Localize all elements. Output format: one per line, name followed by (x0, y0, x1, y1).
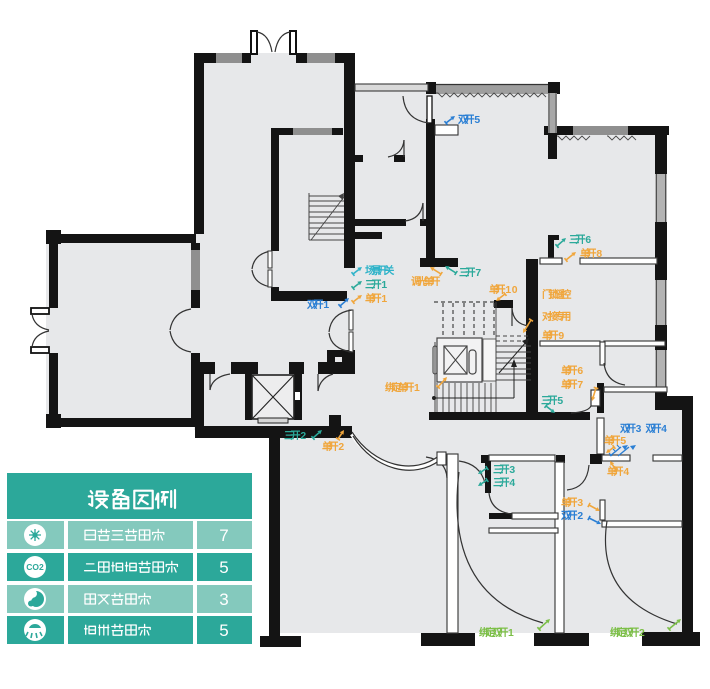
svg-text:5: 5 (219, 621, 228, 640)
svg-text:7: 7 (577, 380, 583, 391)
svg-text:开: 开 (626, 423, 636, 435)
svg-text:1: 1 (381, 280, 387, 291)
svg-text:5: 5 (620, 436, 626, 447)
svg-text:3: 3 (577, 498, 583, 509)
svg-text:CO2: CO2 (26, 562, 44, 572)
svg-text:1: 1 (323, 300, 329, 311)
svg-text:控: 控 (561, 288, 572, 301)
svg-text:6: 6 (585, 235, 591, 246)
svg-text:1: 1 (508, 628, 514, 639)
svg-text:3: 3 (219, 590, 228, 609)
svg-text:3: 3 (509, 465, 515, 476)
svg-text:1: 1 (414, 383, 420, 394)
svg-text:9: 9 (558, 331, 564, 342)
svg-text:4: 4 (661, 424, 667, 435)
svg-text:4: 4 (509, 478, 515, 489)
svg-text:开: 开 (430, 276, 441, 288)
svg-text:用: 用 (560, 311, 571, 323)
svg-text:4: 4 (623, 467, 629, 478)
svg-text:2: 2 (300, 431, 306, 442)
svg-text:1: 1 (505, 285, 511, 296)
svg-text:开: 开 (652, 423, 662, 435)
svg-text:6: 6 (577, 366, 583, 377)
svg-text:5: 5 (557, 396, 563, 407)
svg-text:7: 7 (219, 526, 228, 545)
svg-text:关: 关 (384, 264, 395, 277)
svg-text:3: 3 (636, 424, 642, 435)
svg-text:8: 8 (596, 249, 602, 260)
svg-text:2: 2 (639, 628, 645, 639)
svg-text:7: 7 (475, 268, 481, 279)
svg-text:2: 2 (338, 442, 344, 453)
svg-text:5: 5 (219, 558, 228, 577)
svg-text:5: 5 (474, 115, 480, 126)
svg-text:0: 0 (512, 285, 518, 296)
svg-text:2: 2 (577, 511, 583, 522)
svg-text:1: 1 (381, 294, 387, 305)
